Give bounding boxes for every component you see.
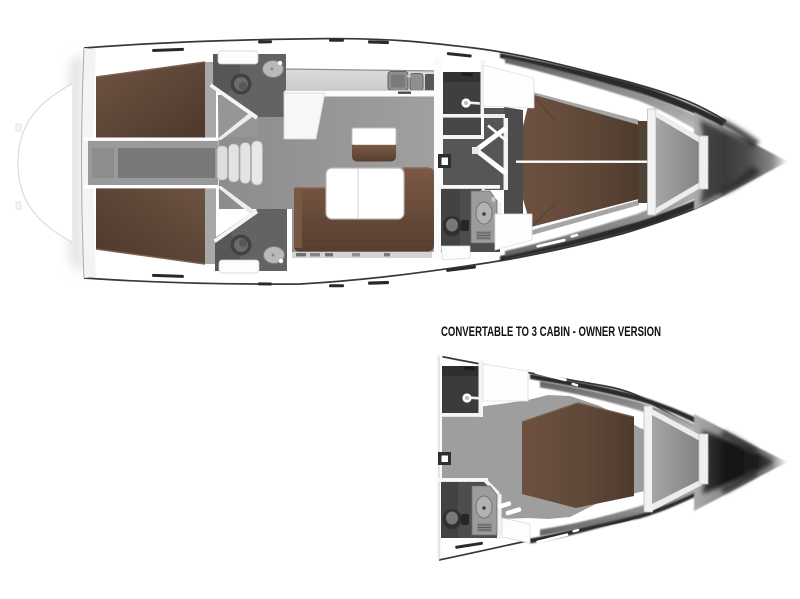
svg-text:CONVERTABLE TO 3 CABIN - OWNER: CONVERTABLE TO 3 CABIN - OWNER VERSION — [441, 324, 661, 340]
